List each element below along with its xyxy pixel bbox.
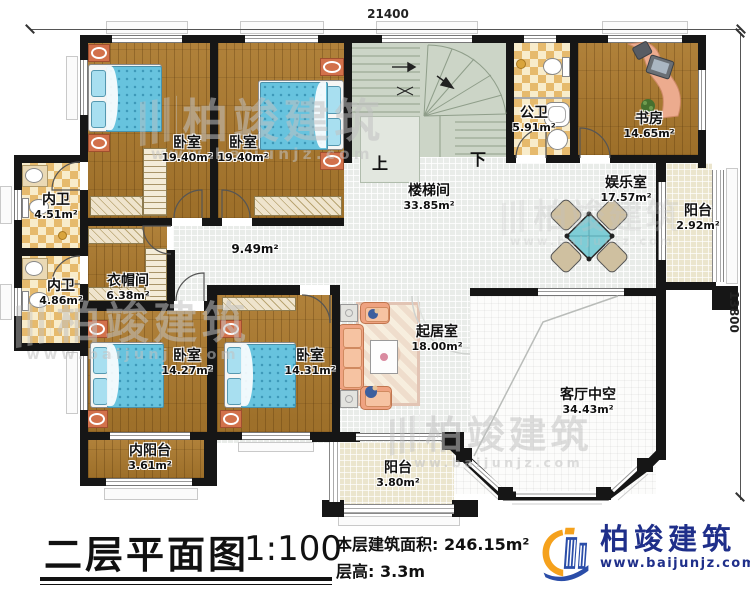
window: [80, 356, 88, 410]
wardrobe-icon: [90, 196, 143, 216]
drawing-scale: 1:100: [244, 529, 342, 569]
partition-line: [512, 97, 570, 99]
dimension-line-top: [30, 29, 741, 30]
wall-pillar: [322, 500, 344, 517]
wall-segment: [570, 43, 578, 155]
wall-segment: [14, 248, 88, 256]
window: [524, 35, 556, 43]
toilet-icon: [22, 291, 29, 311]
coffee-table-icon: [370, 340, 398, 374]
stairs-up-label: 上: [372, 150, 388, 174]
room-label-inner-balcony: 内阳台3.61m²: [128, 444, 171, 472]
built-area-row: 本层建筑面积: 246.15m²: [336, 531, 529, 555]
room-label-balcony-bottom: 阳台3.80m²: [376, 461, 419, 489]
wall-segment: [656, 296, 666, 460]
wall-pillar: [452, 500, 478, 517]
drawing-title: 二层平面图: [44, 524, 249, 579]
room-label-inner-bath-2: 内卫4.86m²: [39, 279, 82, 307]
wall-segment: [344, 43, 352, 163]
window-sill: [66, 56, 78, 120]
balcony-glazing: [329, 442, 340, 502]
stairs-down-label: 下: [470, 146, 486, 170]
logo-icon: [538, 522, 594, 584]
toilet-icon: [543, 58, 562, 75]
side-table-icon: [340, 390, 358, 408]
wall-segment: [210, 43, 218, 226]
window: [106, 478, 192, 486]
sofa-icon: [338, 324, 364, 390]
room-label-bedroom-top-left: 卧室19.40m²: [161, 136, 212, 164]
room-label-bedroom-bottom-mid: 卧室14.31m²: [284, 349, 335, 377]
nightstand-icon: [86, 320, 108, 338]
door-opening: [300, 285, 330, 295]
bed-icon: [88, 64, 162, 132]
door-opening: [222, 218, 252, 226]
nightstand-icon: [220, 320, 242, 338]
window: [14, 190, 22, 220]
room-label-bedroom-bottom-left: 卧室14.27m²: [161, 349, 212, 377]
window-sill: [238, 442, 314, 452]
window-sill: [104, 488, 198, 500]
wardrobe-icon: [88, 228, 144, 244]
window-sill: [338, 516, 460, 526]
wardrobe-icon: [254, 196, 342, 216]
nightstand-icon: [320, 58, 344, 76]
wall-segment: [442, 432, 464, 450]
stair-landing: [360, 116, 420, 183]
corridor-area-label: 9.49m²: [231, 243, 278, 256]
window: [14, 288, 22, 316]
bay-floor: [442, 432, 656, 494]
bed-icon: [90, 342, 164, 408]
logo-text: 柏竣建筑 www.baijunjz.com: [600, 522, 750, 572]
railing-window: [538, 288, 624, 296]
sink-icon: [25, 261, 43, 276]
room-label-balcony-right: 阳台2.92m²: [676, 204, 719, 232]
wall-segment: [14, 343, 88, 351]
window-sill: [602, 21, 688, 34]
window: [112, 35, 182, 43]
window: [382, 35, 472, 43]
window-sill: [66, 352, 78, 414]
door-opening: [516, 155, 546, 163]
room-label-inner-bath-1: 内卫4.51m²: [34, 193, 77, 221]
door-opening: [174, 301, 204, 311]
nightstand-icon: [88, 44, 110, 62]
window-sill: [0, 186, 12, 224]
company-logo: 柏竣建筑 www.baijunjz.com: [538, 522, 750, 584]
side-table-icon: [340, 304, 358, 322]
nightstand-icon: [88, 134, 110, 152]
window: [110, 432, 190, 440]
sink-icon: [25, 168, 43, 183]
room-label-cloakroom: 衣帽间6.38m²: [106, 274, 149, 302]
window-sill: [106, 21, 188, 34]
nightstand-icon: [320, 152, 344, 170]
armchair-icon: [360, 386, 392, 410]
title-underline: [40, 584, 332, 585]
armchair-icon: [360, 302, 390, 324]
sink-icon: [516, 59, 526, 69]
room-label-stair-hall: 楼梯间33.85m²: [403, 184, 454, 212]
room-label-living-void: 客厅中空34.43m²: [560, 388, 616, 416]
room-label-study: 书房14.65m²: [623, 112, 674, 140]
wall-segment: [14, 155, 22, 351]
sliding-door: [356, 433, 442, 441]
room-label-public-bath: 公卫5.91m²: [512, 106, 555, 134]
door-opening: [172, 218, 202, 226]
logo-name: 柏竣建筑: [600, 522, 750, 556]
balcony-glazing: [344, 504, 454, 514]
toilet-icon: [22, 198, 29, 218]
logo-url: www.baijunjz.com: [600, 556, 750, 572]
window: [245, 35, 318, 43]
window-sill: [240, 21, 324, 34]
drain-icon: [58, 231, 67, 240]
nightstand-icon: [86, 410, 108, 428]
window-sill: [0, 284, 12, 320]
wall-segment: [506, 43, 514, 163]
door-opening: [580, 155, 610, 163]
nightstand-icon: [220, 410, 242, 428]
door-opening: [80, 162, 88, 190]
living-void-floor: [470, 296, 656, 443]
window: [698, 70, 706, 130]
wall-segment: [14, 155, 88, 163]
wall-segment: [204, 440, 217, 486]
floor-plan-sheet: 柏竣建筑 www.baijunjz.com 柏竣建筑 www.baijunjz.…: [0, 0, 750, 593]
wardrobe-icon: [222, 297, 296, 311]
dimension-line-right: [740, 32, 741, 500]
window: [80, 60, 88, 115]
floor-height-row: 层高: 3.3m: [336, 558, 425, 582]
window: [242, 432, 310, 440]
room-label-bedroom-top-mid: 卧室19.40m²: [217, 136, 268, 164]
window: [608, 35, 682, 43]
dimension-right-value: 13800: [727, 284, 741, 340]
dimension-top-value: 21400: [358, 7, 418, 21]
room-label-entertainment: 娱乐室17.57m²: [600, 176, 651, 204]
window-sill: [376, 21, 478, 34]
bed-icon: [258, 80, 344, 150]
room-label-sitting-room: 起居室18.00m²: [411, 325, 462, 353]
toilet-icon: [562, 57, 570, 77]
title-underline: [40, 577, 332, 581]
window-sill: [726, 168, 738, 284]
window: [658, 182, 666, 260]
